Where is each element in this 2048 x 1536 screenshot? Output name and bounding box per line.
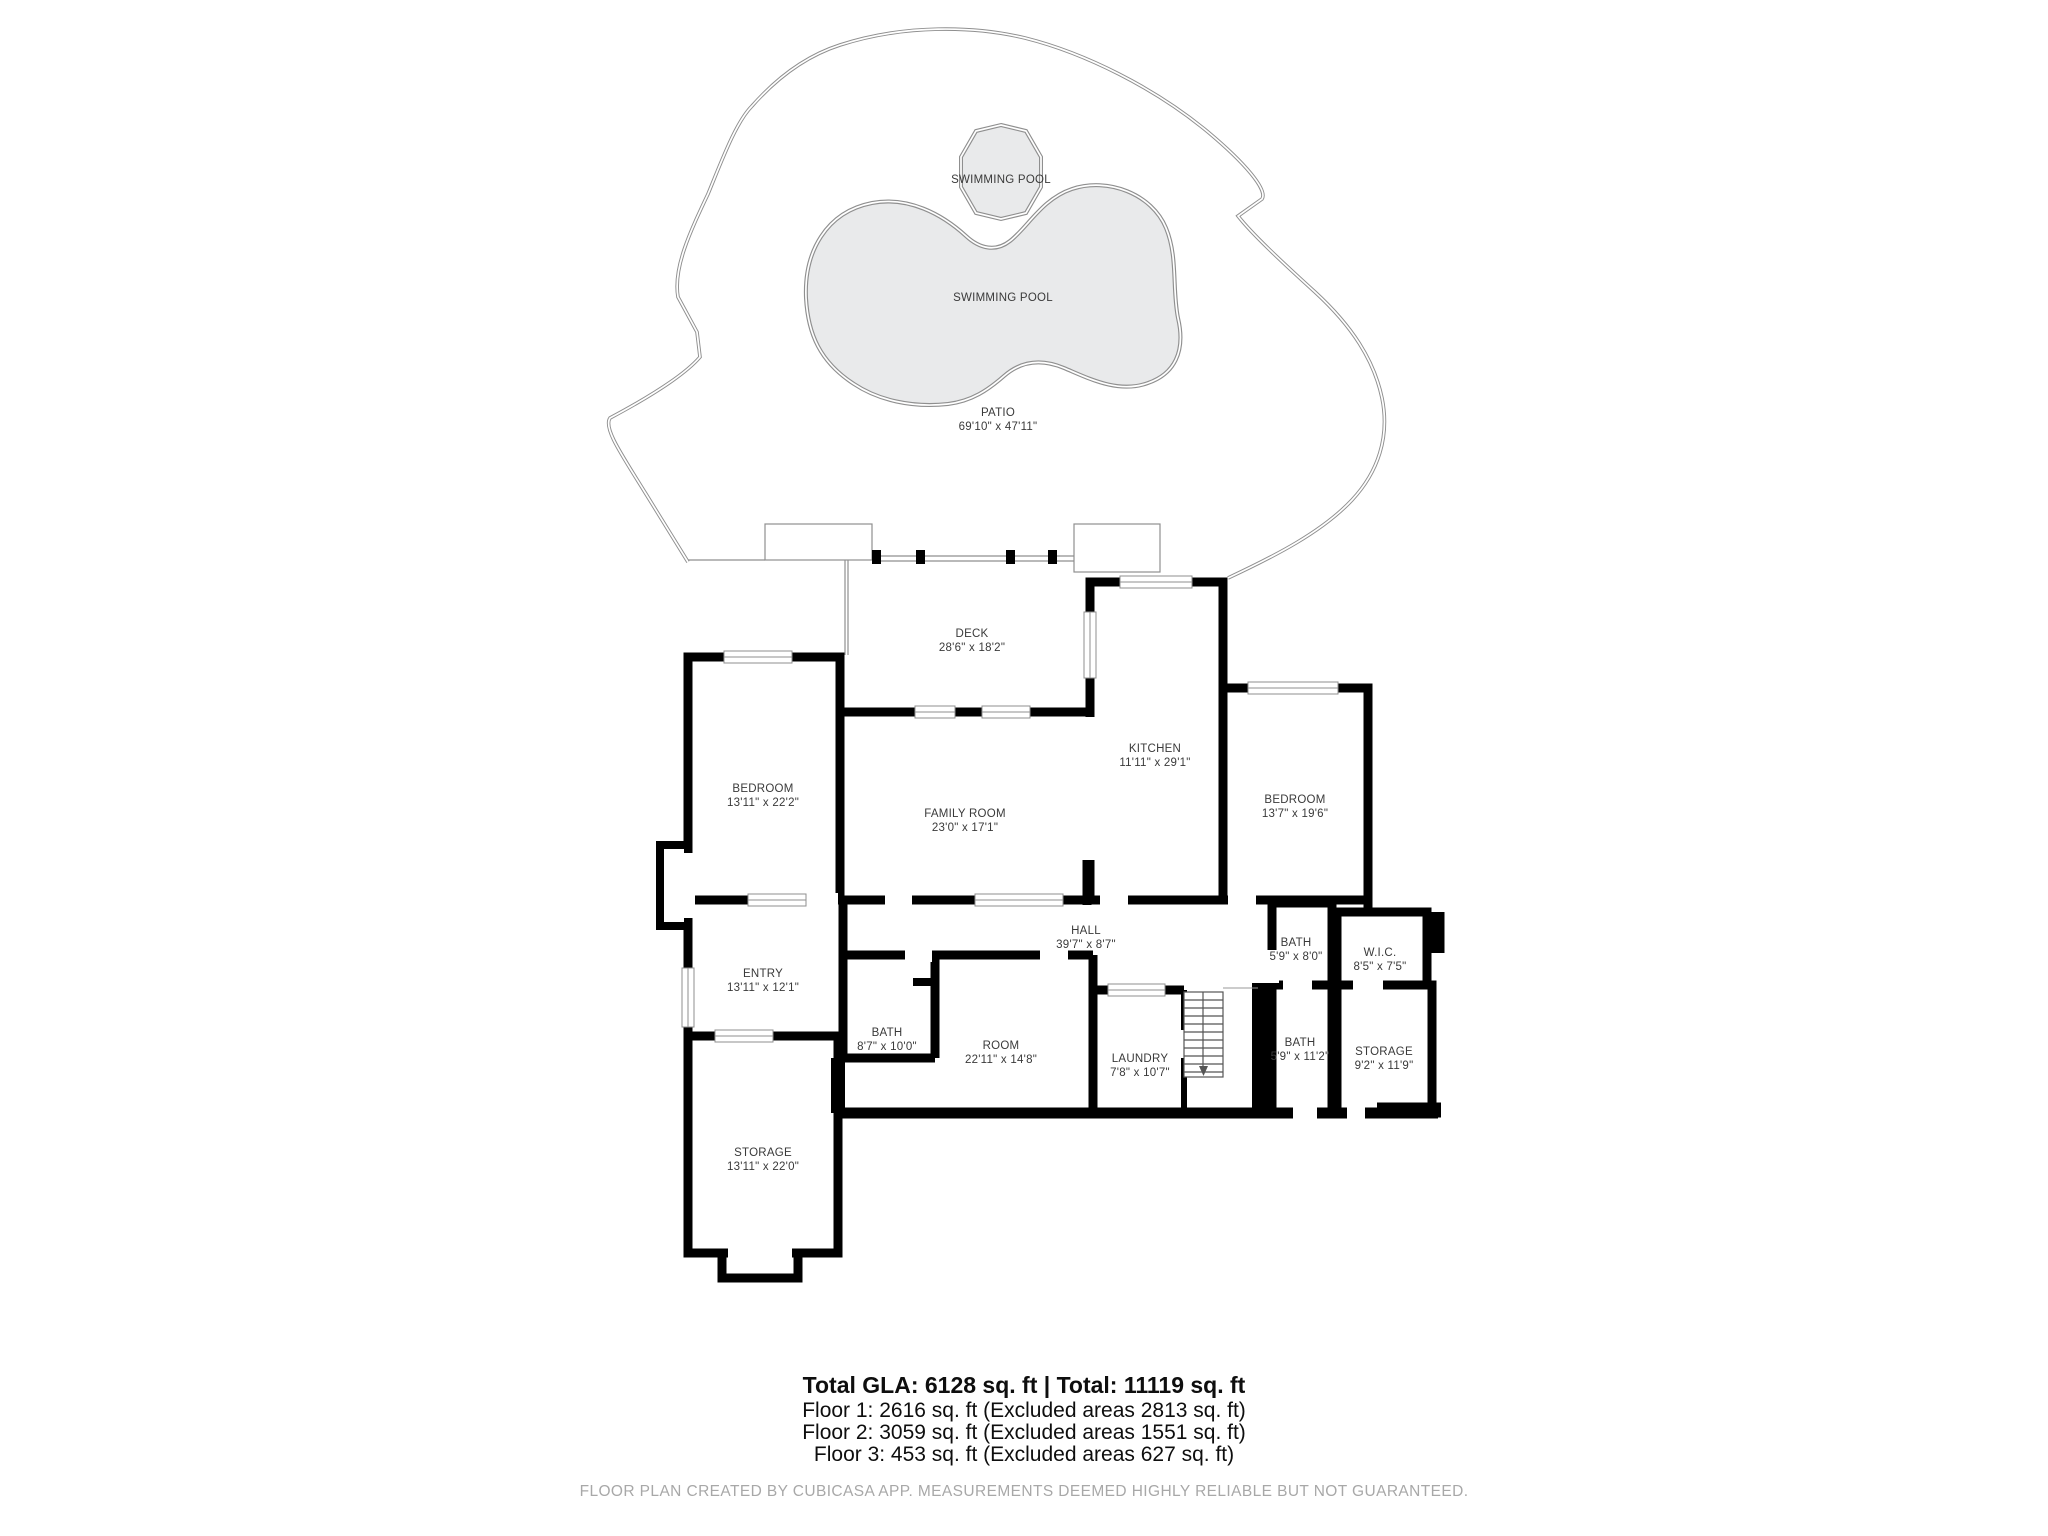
label-kitchen: KITCHEN11'11" x 29'1" [1119, 742, 1190, 770]
label-hall: HALL39'7" x 8'7" [1056, 924, 1116, 952]
label-entry: ENTRY13'11" x 12'1" [727, 967, 799, 995]
label-storage-bottom: STORAGE13'11" x 22'0" [727, 1146, 799, 1174]
label-bath-bottom: BATH5'9" x 11'2" [1271, 1036, 1330, 1064]
disclaimer-text: FLOOR PLAN CREATED BY CUBICASA APP. MEAS… [0, 1483, 2048, 1501]
label-pool-large: SWIMMING POOL [953, 291, 1053, 305]
total-gla-line: Total GLA: 6128 sq. ft | Total: 11119 sq… [0, 1372, 2048, 1398]
label-wic: W.I.C.8'5" x 7'5" [1353, 946, 1406, 974]
floor-3-line: Floor 3: 453 sq. ft (Excluded areas 627 … [0, 1444, 2048, 1466]
floorplan-drawing [0, 0, 2048, 1536]
label-family-room: FAMILY ROOM23'0" x 17'1" [924, 807, 1006, 835]
label-bath-top: BATH5'9" x 8'0" [1269, 936, 1322, 964]
stairs [1184, 992, 1223, 1077]
label-bedroom-left: BEDROOM13'11" x 22'2" [727, 782, 799, 810]
floor-2-line: Floor 2: 3059 sq. ft (Excluded areas 155… [0, 1422, 2048, 1444]
label-laundry: LAUNDRY7'8" x 10'7" [1110, 1052, 1170, 1080]
label-room: ROOM22'11" x 14'8" [965, 1039, 1037, 1067]
label-bath-mid: BATH8'7" x 10'0" [857, 1026, 917, 1054]
label-storage-right: STORAGE9'2" x 11'9" [1355, 1045, 1414, 1073]
floor-1-line: Floor 1: 2616 sq. ft (Excluded areas 281… [0, 1400, 2048, 1422]
label-bedroom-right: BEDROOM13'7" x 19'6" [1262, 793, 1328, 821]
deck-posts [872, 550, 1057, 564]
area-summary: Total GLA: 6128 sq. ft | Total: 11119 sq… [0, 1372, 2048, 1466]
label-pool-small: SWIMMING POOL [951, 173, 1051, 187]
swimming-pool-small-shape [961, 125, 1041, 219]
label-patio: PATIO69'10" x 47'11" [959, 406, 1038, 434]
floorplan-page: SWIMMING POOL SWIMMING POOL PATIO69'10" … [0, 0, 2048, 1536]
label-deck: DECK28'6" x 18'2" [939, 627, 1005, 655]
